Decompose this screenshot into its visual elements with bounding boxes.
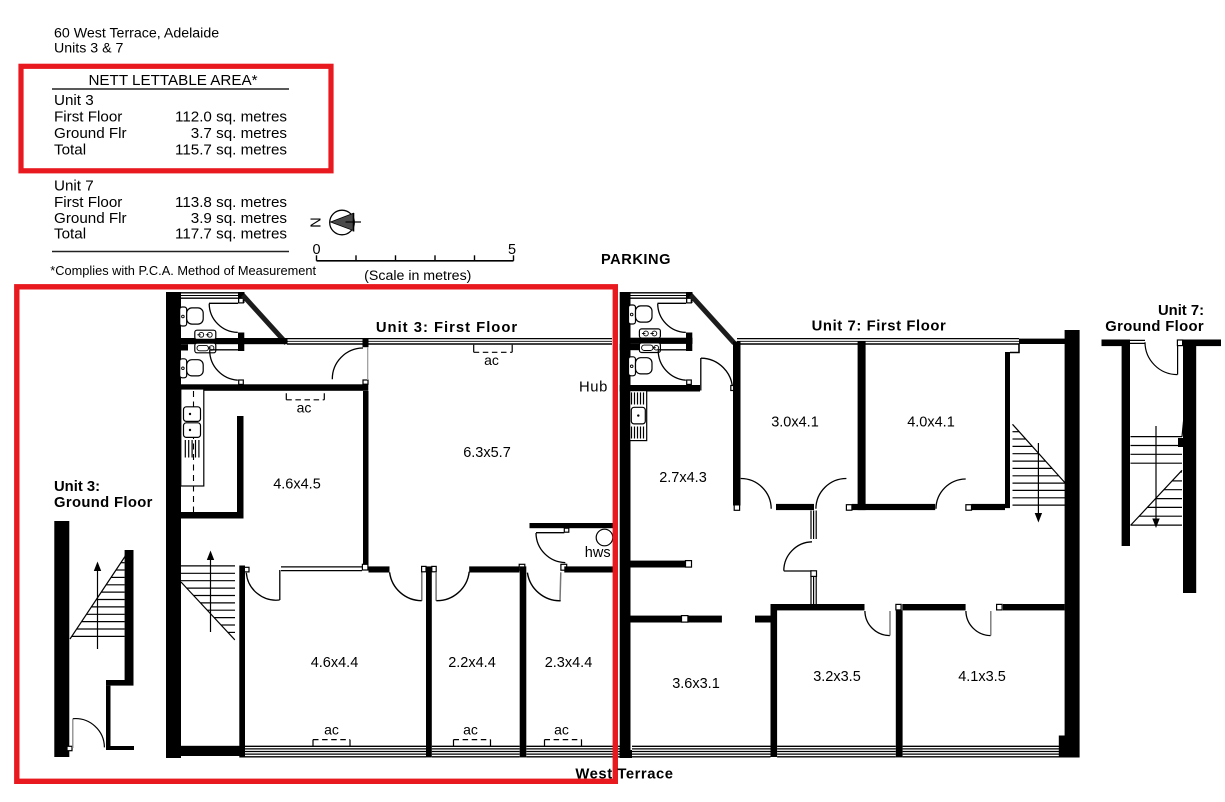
svg-text:4.6x4.4: 4.6x4.4 (311, 655, 359, 671)
svg-text:Units 3 & 7: Units 3 & 7 (54, 41, 124, 57)
svg-text:Ground Floor: Ground Floor (54, 495, 153, 511)
svg-text:ac: ac (297, 400, 312, 416)
svg-text:5: 5 (508, 242, 516, 258)
svg-text:Unit 3: Unit 3 (54, 92, 94, 109)
svg-text:Unit 3:: Unit 3: (54, 479, 100, 495)
svg-text:NETT LETTABLE AREA*: NETT LETTABLE AREA* (88, 72, 257, 89)
svg-text:Ground Floor: Ground Floor (1105, 319, 1204, 335)
svg-text:Ground Flr: Ground Flr (54, 125, 127, 142)
svg-text:Ground Flr: Ground Flr (54, 210, 127, 227)
svg-text:PARKING: PARKING (601, 252, 671, 268)
svg-text:3.6x3.1: 3.6x3.1 (672, 676, 720, 692)
svg-text:Total: Total (54, 142, 86, 159)
svg-text:4.6x4.5: 4.6x4.5 (273, 477, 321, 493)
svg-text:0: 0 (312, 242, 320, 258)
svg-text:West Terrace: West Terrace (575, 766, 673, 782)
svg-text:4.1x3.5: 4.1x3.5 (958, 669, 1006, 685)
svg-text:2.2x4.4: 2.2x4.4 (448, 655, 496, 671)
svg-text:4.0x4.1: 4.0x4.1 (907, 415, 955, 431)
svg-text:First Floor: First Floor (54, 194, 122, 211)
svg-text:Unit 7: First Floor: Unit 7: First Floor (812, 319, 947, 335)
svg-text:2.3x4.4: 2.3x4.4 (545, 655, 593, 671)
svg-text:3.7 sq. metres: 3.7 sq. metres (191, 125, 288, 142)
svg-text:3.9 sq. metres: 3.9 sq. metres (191, 210, 288, 227)
svg-text:First Floor: First Floor (54, 109, 122, 126)
svg-text:ac: ac (324, 722, 339, 738)
svg-text:112.0 sq. metres: 112.0 sq. metres (175, 109, 287, 126)
svg-text:N: N (309, 217, 325, 227)
svg-text:ac: ac (554, 722, 569, 738)
svg-text:hws: hws (585, 545, 611, 561)
svg-text:Total: Total (54, 226, 86, 243)
svg-text:Unit 7: Unit 7 (54, 178, 94, 195)
svg-text:2.7x4.3: 2.7x4.3 (659, 470, 707, 486)
svg-text:115.7 sq. metres: 115.7 sq. metres (175, 142, 287, 159)
svg-text:60 West Terrace, Adelaide: 60 West Terrace, Adelaide (54, 26, 219, 42)
svg-text:113.8 sq. metres: 113.8 sq. metres (175, 194, 287, 211)
svg-text:ac: ac (463, 722, 478, 738)
svg-text:117.7 sq. metres: 117.7 sq. metres (175, 226, 287, 243)
svg-text:(Scale in metres): (Scale in metres) (364, 268, 471, 284)
svg-text:Unit 3: First Floor: Unit 3: First Floor (376, 320, 518, 336)
svg-text:Hub: Hub (579, 380, 608, 396)
svg-text:3.0x4.1: 3.0x4.1 (771, 415, 819, 431)
svg-text:ac: ac (484, 352, 499, 368)
svg-text:6.3x5.7: 6.3x5.7 (463, 445, 511, 461)
svg-text:3.2x3.5: 3.2x3.5 (813, 669, 861, 685)
svg-text:Unit 7:: Unit 7: (1158, 303, 1204, 319)
svg-text:*Complies with P.C.A. Method o: *Complies with P.C.A. Method of Measurem… (50, 263, 316, 278)
